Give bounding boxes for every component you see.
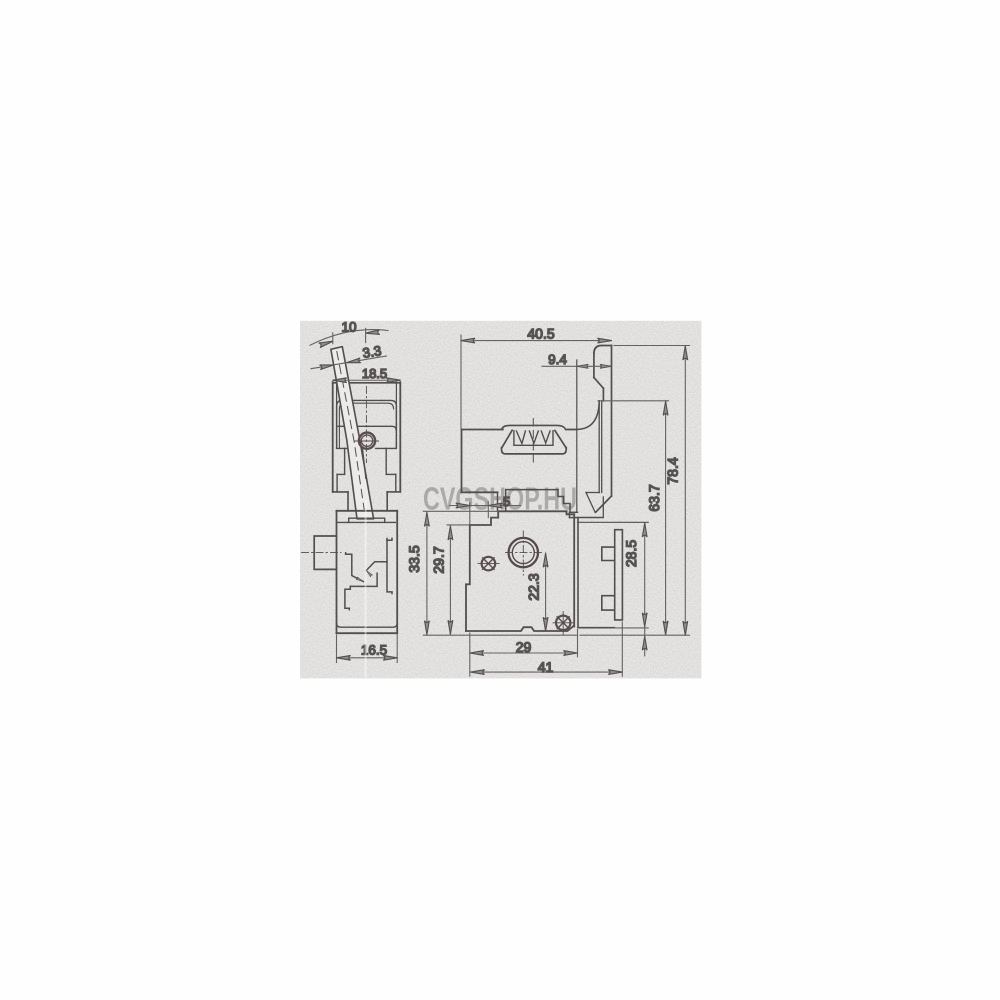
svg-text:29: 29 xyxy=(516,639,532,655)
svg-text:41: 41 xyxy=(538,659,554,675)
svg-text:33.5: 33.5 xyxy=(406,545,422,572)
svg-text:28.5: 28.5 xyxy=(623,540,639,567)
svg-text:63.7: 63.7 xyxy=(646,484,662,511)
svg-text:5: 5 xyxy=(503,494,510,509)
svg-text:10: 10 xyxy=(341,320,356,335)
svg-text:29.7: 29.7 xyxy=(431,546,447,573)
svg-text:18.5: 18.5 xyxy=(362,366,387,381)
svg-text:3.3: 3.3 xyxy=(362,343,383,361)
svg-text:9.4: 9.4 xyxy=(548,352,567,367)
svg-text:22.3: 22.3 xyxy=(526,573,542,600)
svg-text:78.4: 78.4 xyxy=(665,457,681,484)
svg-text:40.5: 40.5 xyxy=(527,326,554,342)
